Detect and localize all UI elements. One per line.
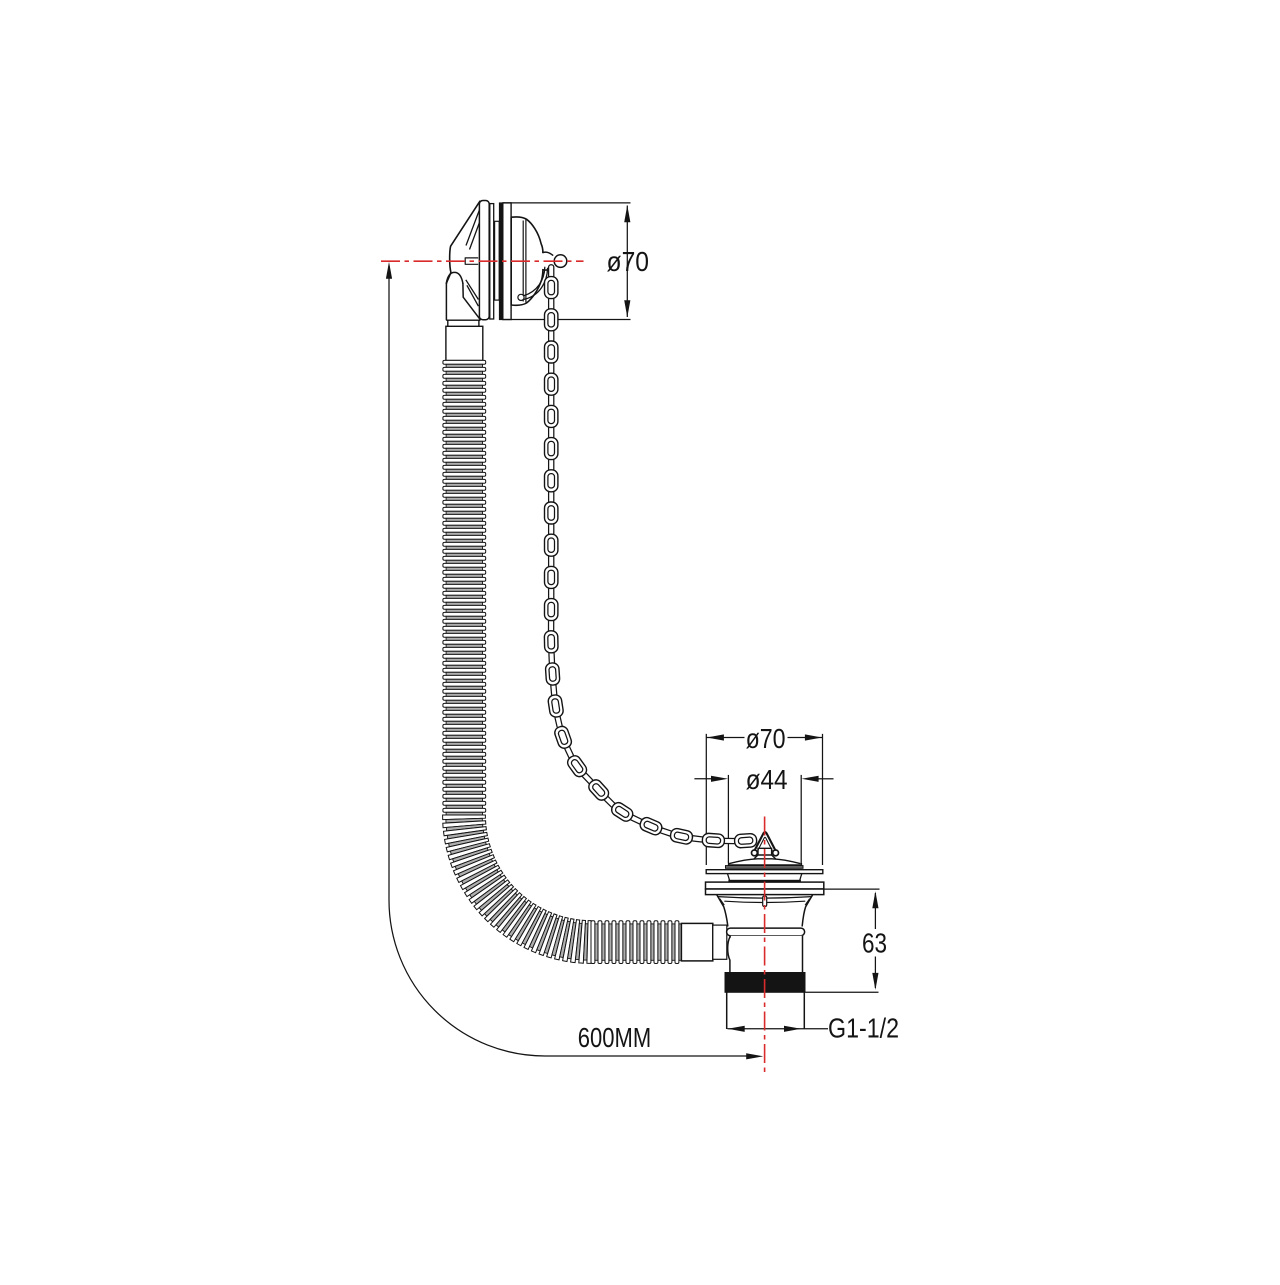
svg-text:600MM: 600MM (578, 1022, 651, 1053)
svg-text:G1-1/2: G1-1/2 (828, 1013, 899, 1044)
svg-text:63: 63 (862, 928, 887, 959)
svg-text:ø70: ø70 (607, 246, 650, 277)
svg-text:ø70: ø70 (746, 723, 786, 754)
svg-text:ø44: ø44 (746, 764, 788, 795)
